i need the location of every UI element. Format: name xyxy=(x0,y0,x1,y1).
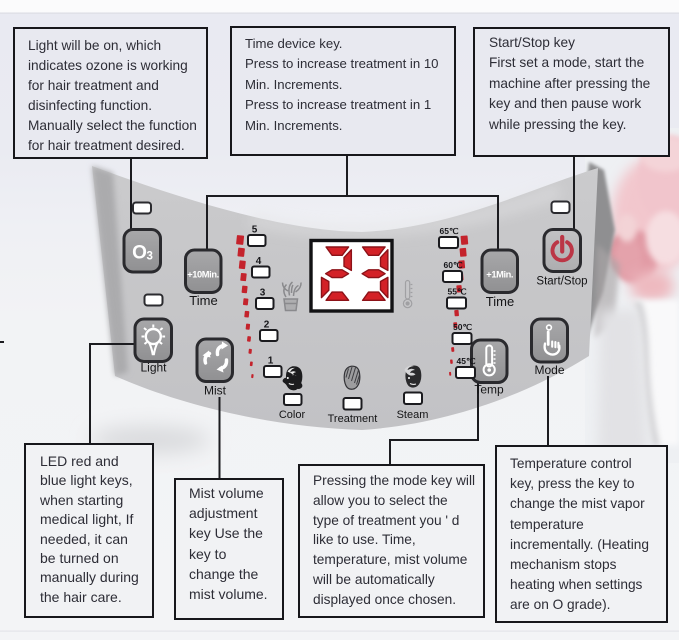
svg-text:Treatment: Treatment xyxy=(328,413,378,425)
svg-text:3: 3 xyxy=(260,288,266,299)
svg-text:5: 5 xyxy=(252,225,258,236)
svg-text:Time: Time xyxy=(189,293,217,308)
svg-text:60℃: 60℃ xyxy=(443,260,462,270)
svg-text:+1Min.: +1Min. xyxy=(486,270,513,280)
svg-text:Temp: Temp xyxy=(474,383,504,397)
svg-text:O: O xyxy=(132,243,147,264)
svg-text:Color: Color xyxy=(279,409,306,421)
svg-text:Mode: Mode xyxy=(534,363,564,377)
svg-text:Mist: Mist xyxy=(204,384,227,398)
svg-text:3: 3 xyxy=(147,251,153,263)
svg-text:50℃: 50℃ xyxy=(453,322,472,332)
svg-text:Steam: Steam xyxy=(397,409,429,421)
svg-text:Start/Stop: Start/Stop xyxy=(536,276,587,288)
svg-text:65℃: 65℃ xyxy=(439,226,458,236)
svg-text:+10Min.: +10Min. xyxy=(187,270,219,280)
svg-text:Light: Light xyxy=(140,361,167,375)
svg-text:1: 1 xyxy=(268,356,274,367)
svg-text:45℃: 45℃ xyxy=(456,356,475,366)
svg-text:2: 2 xyxy=(264,320,270,331)
svg-text:4: 4 xyxy=(256,256,262,267)
svg-text:Time: Time xyxy=(486,294,514,309)
svg-text:55℃: 55℃ xyxy=(447,287,466,297)
